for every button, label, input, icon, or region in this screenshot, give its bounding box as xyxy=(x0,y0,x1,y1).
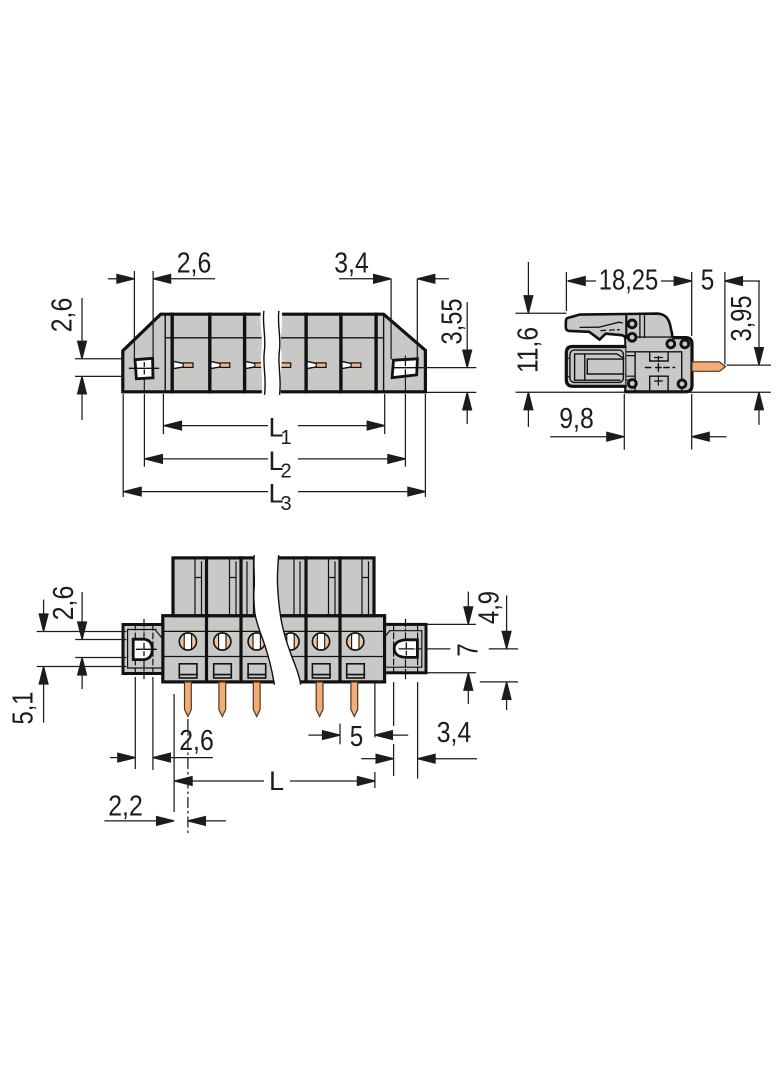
svg-text:3,95: 3,95 xyxy=(726,296,758,342)
svg-text:2,6: 2,6 xyxy=(47,298,79,333)
svg-text:7: 7 xyxy=(453,643,485,657)
svg-text:3,55: 3,55 xyxy=(437,299,469,345)
svg-text:11,6: 11,6 xyxy=(513,327,545,373)
svg-text:18,25: 18,25 xyxy=(599,265,659,297)
svg-text:L: L xyxy=(269,766,284,796)
svg-text:3: 3 xyxy=(280,493,291,515)
svg-text:2,2: 2,2 xyxy=(108,791,143,823)
svg-text:2,6: 2,6 xyxy=(179,725,214,757)
svg-text:2,6: 2,6 xyxy=(48,586,80,621)
svg-text:2,6: 2,6 xyxy=(177,248,212,280)
svg-text:3,4: 3,4 xyxy=(437,717,472,749)
svg-text:5: 5 xyxy=(701,265,715,297)
svg-text:3,4: 3,4 xyxy=(334,248,369,280)
svg-text:5: 5 xyxy=(350,721,364,753)
svg-text:4,9: 4,9 xyxy=(474,591,506,624)
svg-text:5,1: 5,1 xyxy=(8,692,40,725)
svg-text:9,8: 9,8 xyxy=(559,403,594,435)
